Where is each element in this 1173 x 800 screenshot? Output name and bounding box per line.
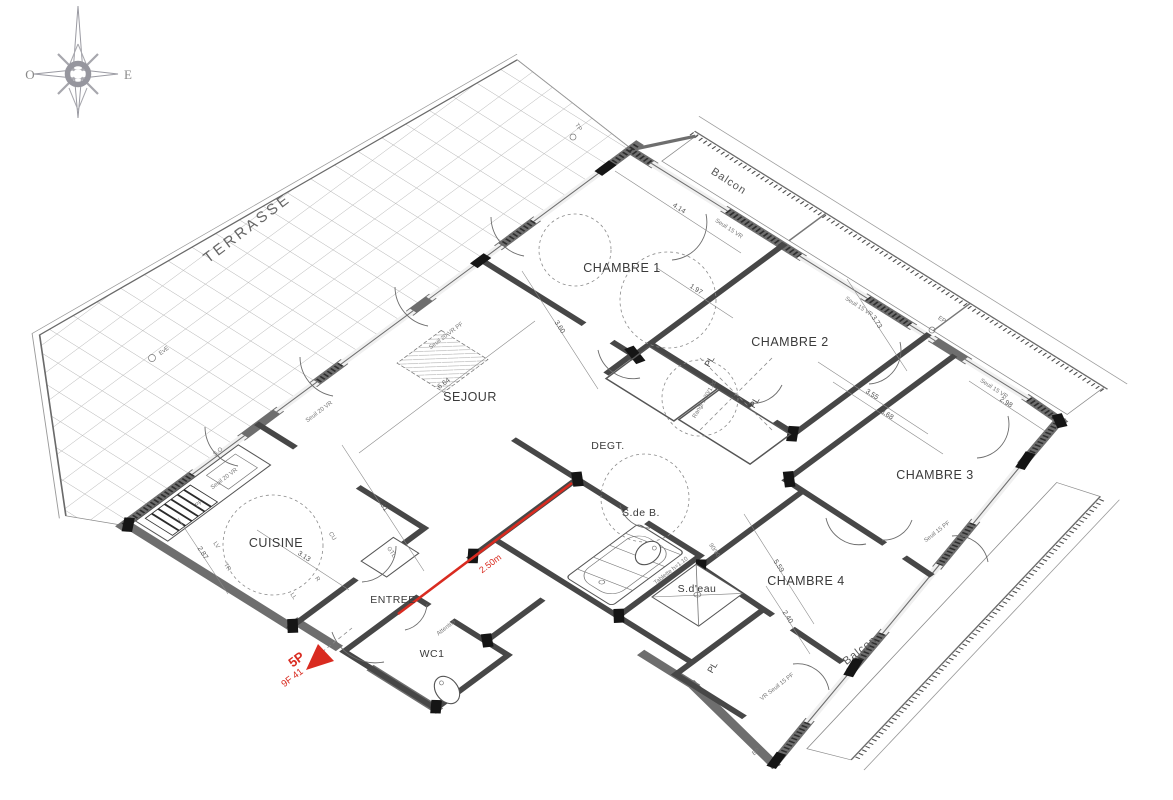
label-vr-seuil15-pf: VR Seuil 15 PF — [759, 672, 795, 702]
room-label-sdeau: S.d'eau — [678, 583, 717, 595]
red-dim-label: 2.50m — [477, 552, 503, 575]
room-label-chambre1: CHAMBRE 1 — [583, 261, 660, 275]
room-label-wc1: WC1 — [420, 648, 445, 660]
room-label-entree: ENTREE — [370, 594, 416, 606]
room-label-degt: DEGT. — [591, 440, 624, 452]
dim-3-13: 3.13 — [296, 550, 311, 563]
room-label-chambre3: CHAMBRE 3 — [896, 468, 973, 482]
dim-4-91: 4.91 — [376, 498, 389, 513]
floor-plan-drawing: O E TERRASSE Balcon Balcon SEJOUR CUISIN… — [0, 0, 1173, 800]
label-r: R — [313, 576, 321, 583]
room-label-chambre4: CHAMBRE 4 — [767, 574, 844, 588]
dim-3-60: 3.60 — [553, 320, 566, 335]
label-attentes: Attentes — [436, 619, 457, 637]
dim-3-73: 3.73 — [870, 315, 883, 330]
label-seuil20-vr-2: Seuil 20 VR — [305, 400, 334, 424]
label-seuil15-pf: Seuil 15 PF — [923, 520, 951, 544]
floor-plan-canvas: O E TERRASSE Balcon Balcon SEJOUR CUISIN… — [0, 0, 1173, 800]
dim-4-14: 4.14 — [671, 202, 686, 215]
red-dimension-wall — [398, 483, 572, 614]
plan-geometry — [0, 0, 1173, 800]
dim-1-97: 1.97 — [688, 283, 703, 296]
red-ref-label: 9F 41 — [279, 666, 305, 689]
label-tr: TR — [222, 562, 232, 573]
label-rangt: Rangt 1.20/1.20 — [692, 379, 719, 420]
dim-2-40: 2.40 — [781, 610, 794, 625]
red-lot-label: 5P — [285, 648, 307, 670]
compass-rose-icon — [34, 6, 118, 118]
dim-3-68: 3.68 — [879, 408, 894, 421]
compass-east-label: E — [124, 67, 132, 82]
gtl-box — [361, 537, 419, 577]
room-label-chambre2: CHAMBRE 2 — [751, 335, 828, 349]
entrance-arrow — [306, 644, 334, 670]
closet-label-1: PL — [702, 354, 716, 369]
room-label-sdb: S.de B. — [622, 507, 660, 519]
label-lv: LV — [211, 541, 220, 550]
label-cu: CU — [327, 531, 337, 542]
dim-2-87: 2.87 — [196, 546, 209, 561]
balcony-bottom — [748, 471, 1173, 778]
label-ll: LL — [289, 592, 298, 601]
dim-5-59: 5.59 — [772, 559, 785, 574]
compass-west-label: O — [25, 67, 34, 82]
dim-3-55: 3.55 — [864, 388, 879, 401]
room-label-cuisine: CUISINE — [249, 536, 303, 550]
closet-label-3: PL — [705, 660, 719, 675]
room-label-sejour: SEJOUR — [443, 390, 497, 404]
